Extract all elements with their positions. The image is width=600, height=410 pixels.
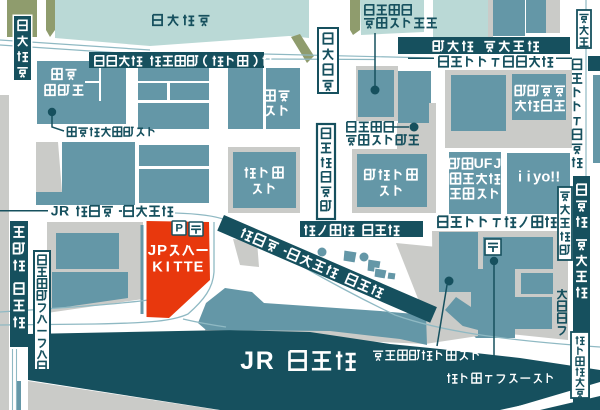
svg-text:!: ! xyxy=(555,170,560,186)
svg-text:K: K xyxy=(152,260,163,276)
svg-text:J: J xyxy=(148,242,156,259)
svg-text:J: J xyxy=(493,155,501,171)
svg-text:R: R xyxy=(256,348,274,375)
svg-text:P: P xyxy=(157,242,167,259)
svg-text:o: o xyxy=(541,170,550,186)
svg-text:R: R xyxy=(59,203,69,219)
svg-text:F: F xyxy=(484,155,493,171)
svg-text:P: P xyxy=(175,223,183,235)
svg-text:i: i xyxy=(518,170,522,186)
svg-text:i: i xyxy=(527,170,531,186)
svg-text:J: J xyxy=(51,203,59,219)
svg-text:T: T xyxy=(184,260,193,276)
svg-text:U: U xyxy=(474,155,484,171)
svg-text:I: I xyxy=(166,260,170,276)
svg-text:T: T xyxy=(174,260,183,276)
svg-text:E: E xyxy=(194,260,204,276)
svg-text:J: J xyxy=(240,348,254,375)
